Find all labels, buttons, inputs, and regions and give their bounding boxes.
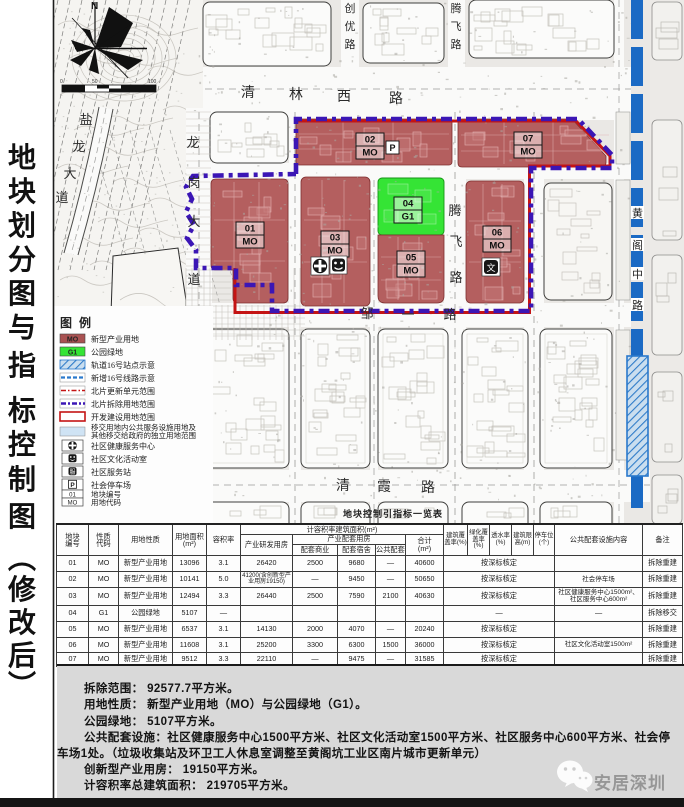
svg-text:块: 块 [8, 176, 36, 208]
svg-text:N: N [91, 1, 98, 12]
svg-text:其他移交给政府的独立用地范围: 其他移交给政府的独立用地范围 [91, 430, 196, 440]
svg-text:龙: 龙 [186, 135, 199, 150]
svg-text:邹: 邹 [360, 306, 373, 321]
svg-text:P: P [389, 143, 395, 153]
svg-text:阁: 阁 [632, 238, 643, 252]
svg-text:道: 道 [55, 190, 68, 205]
svg-text:林: 林 [289, 87, 303, 103]
svg-text:指: 指 [8, 350, 36, 382]
svg-text:北片更新单元范围: 北片更新单元范围 [91, 386, 155, 396]
svg-text:路: 路 [345, 38, 356, 51]
svg-text:盐: 盐 [79, 112, 92, 127]
svg-text:05: 05 [406, 253, 417, 264]
svg-text:︶: ︶ [8, 669, 36, 702]
svg-text:改: 改 [8, 607, 36, 639]
svg-text:新型产业用地: 新型产业用地 [91, 334, 139, 344]
svg-text:一: 一 [401, 307, 414, 322]
svg-text:划: 划 [8, 210, 36, 242]
svg-text:P: P [70, 482, 75, 489]
svg-text:霞: 霞 [377, 479, 391, 495]
svg-text:岗: 岗 [187, 175, 200, 190]
svg-text:轨道16号站点示意: 轨道16号站点示意 [91, 360, 155, 370]
svg-text:控: 控 [8, 429, 36, 461]
svg-text:︵: ︵ [8, 544, 36, 575]
svg-text:中: 中 [632, 268, 643, 281]
svg-text:腾: 腾 [451, 1, 462, 15]
svg-text:路: 路 [451, 38, 462, 51]
svg-text:MO: MO [67, 337, 79, 344]
svg-text:路: 路 [421, 480, 435, 496]
svg-text:优: 优 [345, 20, 356, 33]
svg-text:修: 修 [7, 574, 37, 606]
svg-text:50: 50 [92, 79, 98, 85]
svg-text:图例: 图例 [60, 315, 98, 330]
svg-text:飞: 飞 [449, 234, 462, 249]
svg-text:黄: 黄 [632, 206, 643, 220]
svg-text:分: 分 [8, 244, 36, 276]
svg-text:西: 西 [337, 90, 351, 105]
svg-text:清: 清 [336, 478, 350, 494]
svg-text:01: 01 [69, 493, 76, 499]
svg-text:大: 大 [187, 214, 200, 229]
svg-text:社区服务站: 社区服务站 [91, 467, 131, 477]
svg-text:社区健康服务中心: 社区健康服务中心 [91, 441, 155, 451]
svg-text:龙: 龙 [72, 139, 85, 154]
svg-text:与: 与 [8, 312, 36, 344]
svg-text:腾: 腾 [448, 203, 461, 218]
svg-text:MO: MO [242, 237, 257, 248]
svg-text:G1: G1 [68, 350, 77, 357]
svg-text:路: 路 [443, 307, 456, 322]
svg-text:图: 图 [8, 279, 36, 310]
svg-text:社区文化活动室: 社区文化活动室 [91, 454, 147, 464]
svg-text:02: 02 [365, 135, 376, 146]
svg-text:后: 后 [8, 640, 36, 672]
svg-text:MO: MO [403, 266, 418, 277]
svg-text:公园绿地: 公园绿地 [91, 347, 123, 357]
svg-text:06: 06 [492, 228, 503, 239]
svg-text:0: 0 [60, 79, 63, 85]
svg-text:社会停车场: 社会停车场 [91, 480, 131, 490]
svg-text:03: 03 [330, 233, 341, 244]
svg-text:G1: G1 [402, 212, 415, 223]
svg-text:MO: MO [362, 148, 377, 159]
svg-text:开发建设用地范围: 开发建设用地范围 [91, 412, 155, 422]
svg-text:大: 大 [63, 166, 76, 181]
svg-text:100: 100 [148, 79, 157, 85]
svg-text:MO: MO [520, 147, 535, 158]
svg-text:地: 地 [8, 142, 36, 174]
svg-text:04: 04 [403, 199, 414, 210]
svg-text:创: 创 [345, 2, 356, 15]
svg-text:新增16号线路示意: 新增16号线路示意 [91, 373, 155, 383]
svg-text:路: 路 [389, 91, 403, 107]
svg-text:标: 标 [8, 395, 36, 427]
svg-text:07: 07 [523, 134, 534, 145]
svg-text:01: 01 [245, 224, 256, 235]
svg-text:制: 制 [8, 464, 36, 496]
svg-text:文: 文 [486, 262, 495, 273]
svg-text:服: 服 [69, 469, 75, 476]
svg-text:道: 道 [187, 272, 200, 287]
svg-text:飞: 飞 [451, 21, 462, 33]
svg-text:清: 清 [241, 85, 255, 101]
svg-text:路: 路 [449, 270, 462, 285]
svg-text:北片拆除用地范围: 北片拆除用地范围 [91, 399, 155, 409]
svg-text:图: 图 [8, 502, 36, 533]
svg-text:路: 路 [632, 299, 643, 312]
svg-text:MO: MO [327, 246, 342, 257]
svg-text:MO: MO [489, 241, 504, 252]
